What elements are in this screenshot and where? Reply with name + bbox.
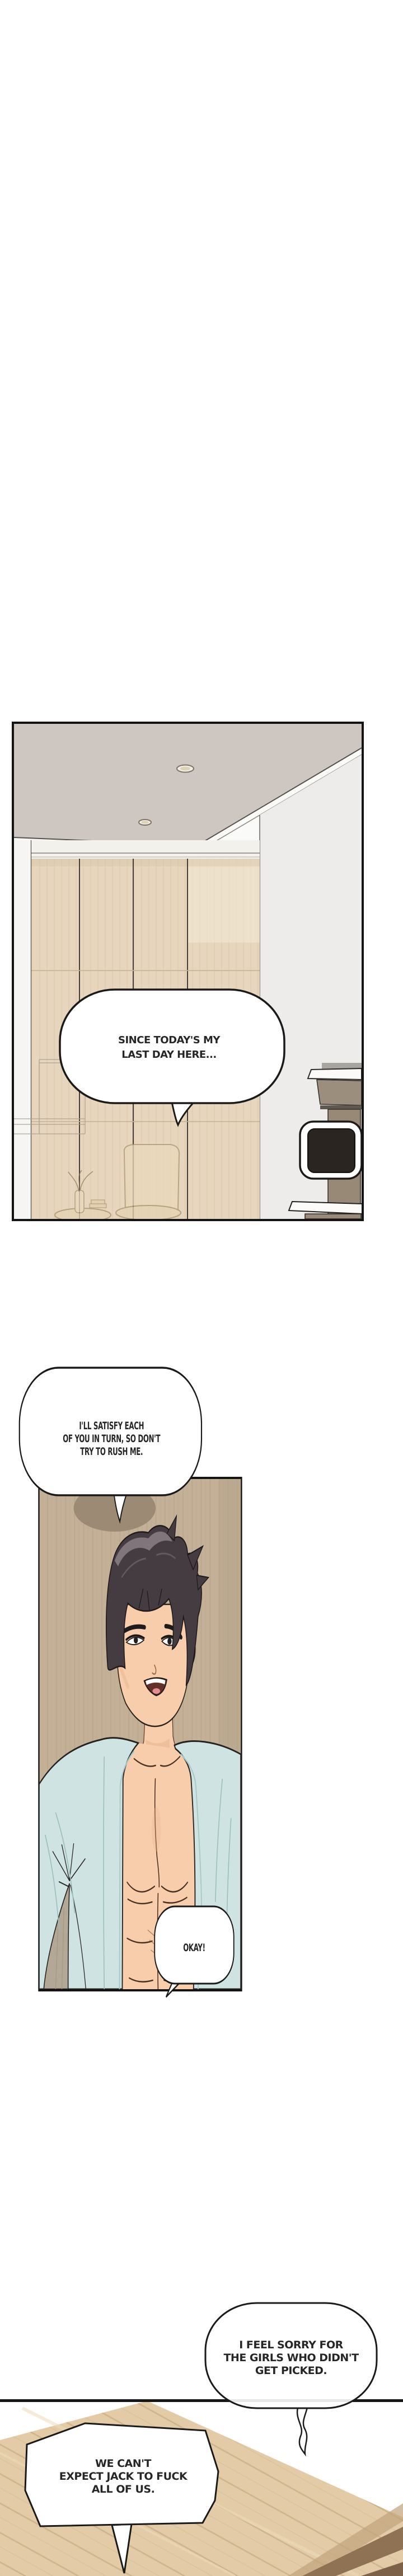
bubble-line: ALL OF US. xyxy=(92,2483,155,2495)
bubble-line: OF YOU IN TURN, SO DON'T xyxy=(63,1432,160,1445)
bubble-line: EXPECT JACK TO FUCK xyxy=(59,2470,188,2483)
bubble-line: SINCE TODAY'S MY xyxy=(118,1034,221,1046)
bubble-line: LAST DAY HERE... xyxy=(121,1049,216,1061)
drawer xyxy=(305,1214,361,1219)
ceiling-light xyxy=(177,765,194,773)
bubble-body xyxy=(60,990,284,1103)
bubble-line: OKAY! xyxy=(183,1941,205,1954)
bubble-line: GET PICKED. xyxy=(255,2365,327,2377)
round-table xyxy=(116,1205,181,1220)
character-panel-section: OKAY! I'LL SATISFY EACH OF YOU IN TURN, … xyxy=(0,1354,403,2003)
room-panel-section: SINCE TODAY'S MY LAST DAY HERE... xyxy=(0,710,403,1226)
tv-screen xyxy=(308,1129,355,1172)
ceiling-light xyxy=(139,820,151,825)
comic-page: SINCE TODAY'S MY LAST DAY HERE... xyxy=(0,0,403,2576)
bubble-line: TRY TO RUSH ME. xyxy=(80,1445,143,1458)
wardrobe-rail xyxy=(31,840,260,859)
chest-shade xyxy=(152,1807,161,1852)
cabinet-shadow xyxy=(320,1105,362,1109)
bubble-line: I'LL SATISFY EACH xyxy=(79,1419,144,1432)
vase xyxy=(75,1190,84,1213)
bubble-tail xyxy=(297,2405,308,2454)
armchair xyxy=(124,1145,179,1215)
speech-bubble-sorry: I FEEL SORRY FOR THE GIRLS WHO DIDN'T GE… xyxy=(205,2303,377,2454)
books xyxy=(91,1200,105,1204)
bubble-line: I FEEL SORRY FOR xyxy=(239,2339,343,2351)
books xyxy=(90,1204,106,1208)
bubble-line: THE GIRLS WHO DIDN'T xyxy=(223,2352,359,2364)
left-wall xyxy=(14,840,31,1219)
upper-shelf xyxy=(308,1068,362,1080)
bubble-line: WE CAN'T xyxy=(95,2457,151,2470)
floor-section: I FEEL SORRY FOR THE GIRLS WHO DIDN'T GE… xyxy=(0,2263,403,2576)
room-scene xyxy=(14,724,363,1222)
cabinet-board xyxy=(317,1080,362,1105)
